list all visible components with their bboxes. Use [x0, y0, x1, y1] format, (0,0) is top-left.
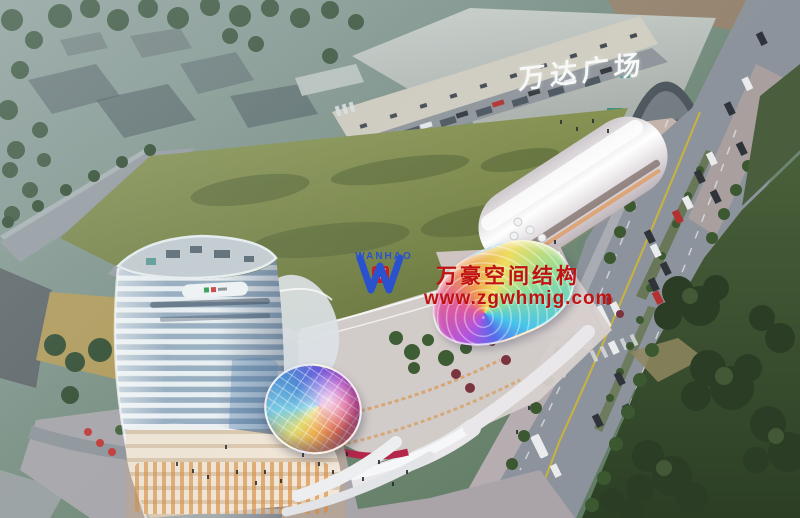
scene-aerial-rendering: 万达广场 万 WANHAO 万豪空间结构 www.zgwhmjg.com [0, 0, 800, 518]
tower-logo-mark [204, 287, 209, 292]
watermark-website: www.zgwhmjg.com [424, 288, 614, 310]
watermark-company: 万豪空间结构 [436, 260, 580, 290]
watermark: 万 WANHAO 万豪空间结构 www.zgwhmjg.com [352, 252, 602, 322]
watermark-logo: 万 WANHAO [352, 254, 416, 262]
w-logo-icon [352, 254, 408, 294]
